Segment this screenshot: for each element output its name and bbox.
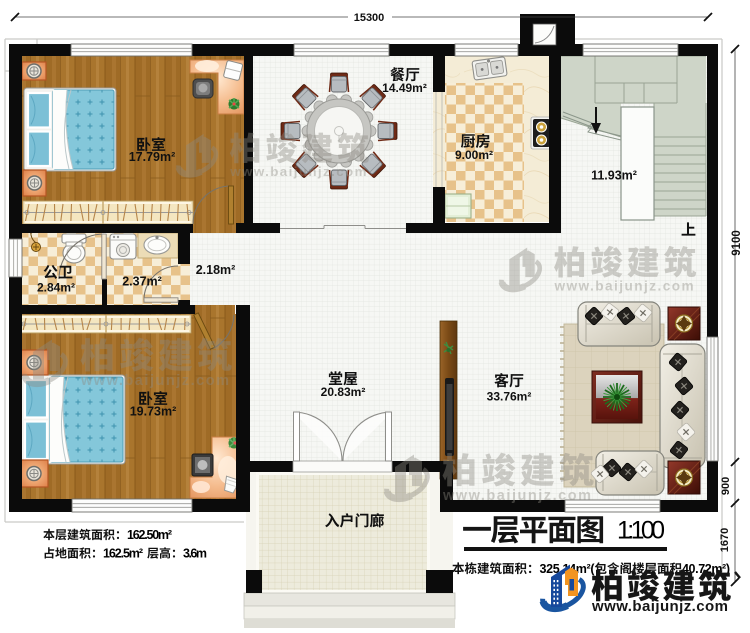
svg-text:2.37m²: 2.37m² [122,275,162,289]
svg-text:9100: 9100 [731,230,743,256]
svg-text:900: 900 [720,477,732,495]
svg-text:3.6m: 3.6m [183,547,207,561]
svg-text:20.83m²: 20.83m² [321,385,366,399]
svg-text:19.73m²: 19.73m² [130,405,177,419]
svg-text:14.49m²: 14.49m² [382,81,427,95]
svg-text:33.76m²: 33.76m² [487,390,532,404]
svg-text:9.00m²: 9.00m² [455,148,493,162]
svg-text:1:100: 1:100 [617,517,665,545]
svg-text:17.79m²: 17.79m² [129,150,176,164]
svg-text:2.18m²: 2.18m² [196,263,236,277]
svg-text:162.5m²: 162.5m² [103,547,143,561]
svg-text:15300: 15300 [354,12,385,24]
svg-text:2.84m²: 2.84m² [37,281,75,295]
svg-text:www.baijunjz.com: www.baijunjz.com [591,598,729,615]
svg-text:162.50m²: 162.50m² [127,528,172,542]
svg-text:1670: 1670 [719,528,731,552]
svg-text:11.93m²: 11.93m² [591,169,637,183]
